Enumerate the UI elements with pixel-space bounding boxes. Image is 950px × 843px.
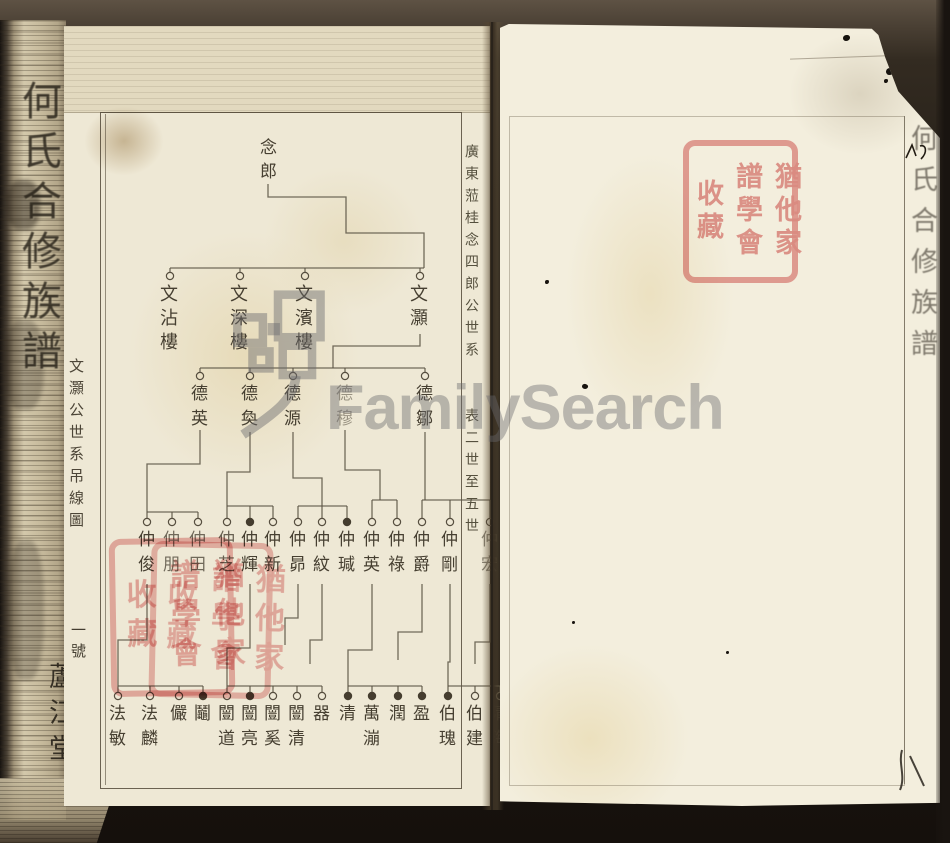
right-margin-caption: 廣東蒞桂念四郎公世系 (463, 144, 477, 364)
tree-node-name: 文灝 (409, 284, 427, 332)
utah-genealogical-society-seal: 猶他家譜學會收藏 (148, 541, 273, 700)
tree-node-name: 盈 (411, 704, 428, 729)
tree-node-name: 伯建 (464, 704, 481, 754)
tree-node-name: 儼 (168, 704, 185, 729)
seal-column: 收藏 (155, 580, 201, 659)
tree-node-name: 德奐 (239, 384, 256, 434)
spine-smudge (8, 540, 44, 680)
utah-genealogical-society-seal: 猶他家譜學會收藏 (683, 140, 798, 283)
tree-node-name: 法麟 (139, 704, 156, 754)
printed-border-inner-line (105, 114, 106, 785)
tree-node-name: 闓奚 (262, 704, 279, 754)
pen-mark (904, 142, 934, 162)
scan-background-edge (936, 0, 950, 843)
pen-mark (896, 746, 930, 794)
tree-node-name: 文濱樓 (294, 284, 312, 356)
tree-node-name: 鬮 (192, 704, 209, 729)
tree-node-name: 器 (311, 704, 328, 729)
right-margin-caption-2: 表二世至五世 (463, 408, 477, 540)
left-margin-caption: 文灝公世系吊線圖 (67, 358, 82, 534)
tree-node-name: 萬漰 (361, 704, 378, 754)
seal-column: 譜學會 (199, 561, 245, 679)
left-margin-number: 一號 (69, 622, 84, 664)
paper-crease (790, 53, 942, 59)
tree-node-name: 仲剛 (439, 530, 456, 580)
book-scan: 何氏合修族譜 蘆江堂 文灝公世系吊線圖 一號 廣東蒞桂念四郎公世系 表二世至五世… (0, 0, 950, 843)
tree-node-name: 仲祿 (386, 530, 403, 580)
tree-node-name: 德源 (282, 384, 299, 434)
seal-column: 收藏 (689, 179, 728, 245)
seal-column: 猶他家 (243, 562, 289, 680)
tree-node-name: 清 (337, 704, 354, 729)
ink-speck (886, 68, 894, 75)
tree-node-name: 德英 (189, 384, 206, 434)
tree-node-name: 仲英 (361, 530, 378, 580)
page-gutter-line (491, 22, 493, 810)
tree-node-name: 伯瑰 (437, 704, 454, 754)
ink-speck (843, 35, 850, 41)
tree-node-name: 仲紋 (311, 530, 328, 580)
seal-column: 譜學會 (728, 162, 767, 261)
tree-node-name: 仲瑊 (336, 530, 353, 580)
tree-node-name: 潤 (387, 704, 404, 729)
tree-node-name: 闓亮 (239, 704, 256, 754)
tree-node-name: 文沾樓 (159, 284, 177, 356)
tree-node-name: 仲昴 (287, 530, 304, 580)
tree-node-name: 闓清 (286, 704, 303, 754)
tree-node-name: 仲爵 (411, 530, 428, 580)
ink-speck (884, 79, 888, 83)
tree-node-name: 德鄒 (414, 384, 431, 434)
tree-node-name: 文深樓 (229, 284, 247, 356)
tree-node-name: 闓道 (216, 704, 233, 754)
spine-title: 何氏合修族譜 (18, 80, 58, 380)
seal-column: 猶他家 (767, 162, 806, 261)
tree-root-name: 念郎 (258, 138, 275, 186)
left-page-top-edge (64, 26, 490, 113)
tree-node-name: 德穆 (334, 384, 351, 434)
tree-node-name: 法敏 (107, 704, 124, 754)
